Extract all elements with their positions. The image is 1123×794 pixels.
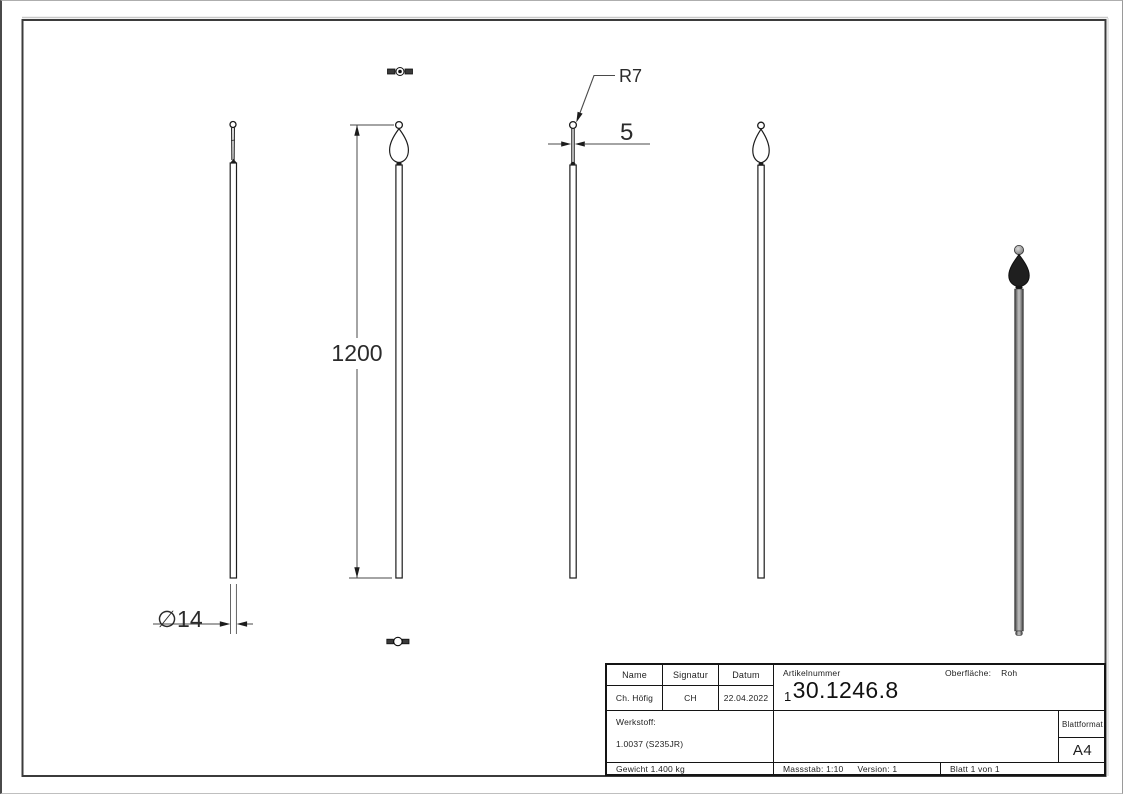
sheet-format-label-cell: Blattformat xyxy=(1059,711,1106,738)
empty-cell xyxy=(774,711,1059,763)
article-number-cell: Artikelnummer 130.1246.8 Oberfläche: Roh xyxy=(774,665,1106,711)
sheet-number-cell: Blatt 1 von 1 xyxy=(941,763,1106,774)
dimension-radius: R7 xyxy=(576,66,642,123)
diameter-label: ∅14 xyxy=(157,606,203,632)
view-front-main xyxy=(390,122,409,578)
signature-header-cell: Signatur xyxy=(663,665,719,686)
view-side-dimensioned xyxy=(570,122,577,578)
view-rendered xyxy=(1009,245,1029,635)
radius-label: R7 xyxy=(619,66,642,86)
name-value-cell: Ch. Höfig xyxy=(607,686,663,711)
article-number-value: 130.1246.8 xyxy=(784,677,899,704)
scale-value: Massstab: 1:10 xyxy=(783,764,843,774)
dimension-drop-width: 5 xyxy=(548,119,650,147)
version-value: Version: 1 xyxy=(857,764,897,774)
title-block: Name Signatur Datum Artikelnummer 130.12… xyxy=(605,663,1106,776)
article-number-prefix: 1 xyxy=(784,689,792,704)
length-label: 1200 xyxy=(331,340,382,366)
sheet-format-value-cell: A4 xyxy=(1059,738,1106,763)
drawing-sheet: ∅14 1200 xyxy=(0,0,1123,794)
surface-finish: Oberfläche: Roh xyxy=(945,668,1017,678)
date-value-cell: 22.04.2022 xyxy=(719,686,774,711)
material-value: 1.0037 (S235JR) xyxy=(616,739,683,749)
material-cell: Werkstoff: 1.0037 (S235JR) xyxy=(607,711,774,763)
weight-cell: Gewicht 1.400 kg xyxy=(607,763,774,774)
signature-value-cell: CH xyxy=(663,686,719,711)
material-label: Werkstoff: xyxy=(616,717,656,727)
dimension-length: 1200 xyxy=(331,125,394,578)
dimension-diameter: ∅14 xyxy=(153,606,253,632)
drop-width-label: 5 xyxy=(620,119,633,146)
view-plan-top xyxy=(388,68,413,76)
date-header-cell: Datum xyxy=(719,665,774,686)
surface-label: Oberfläche: xyxy=(945,668,991,678)
view-front-right xyxy=(753,122,769,578)
view-side-left xyxy=(230,122,237,635)
scale-cell: Massstab: 1:10 Version: 1 xyxy=(774,763,941,774)
name-header-cell: Name xyxy=(607,665,663,686)
surface-value: Roh xyxy=(1001,668,1017,678)
view-plan-bottom xyxy=(387,637,409,645)
article-number-main: 30.1246.8 xyxy=(793,677,899,703)
